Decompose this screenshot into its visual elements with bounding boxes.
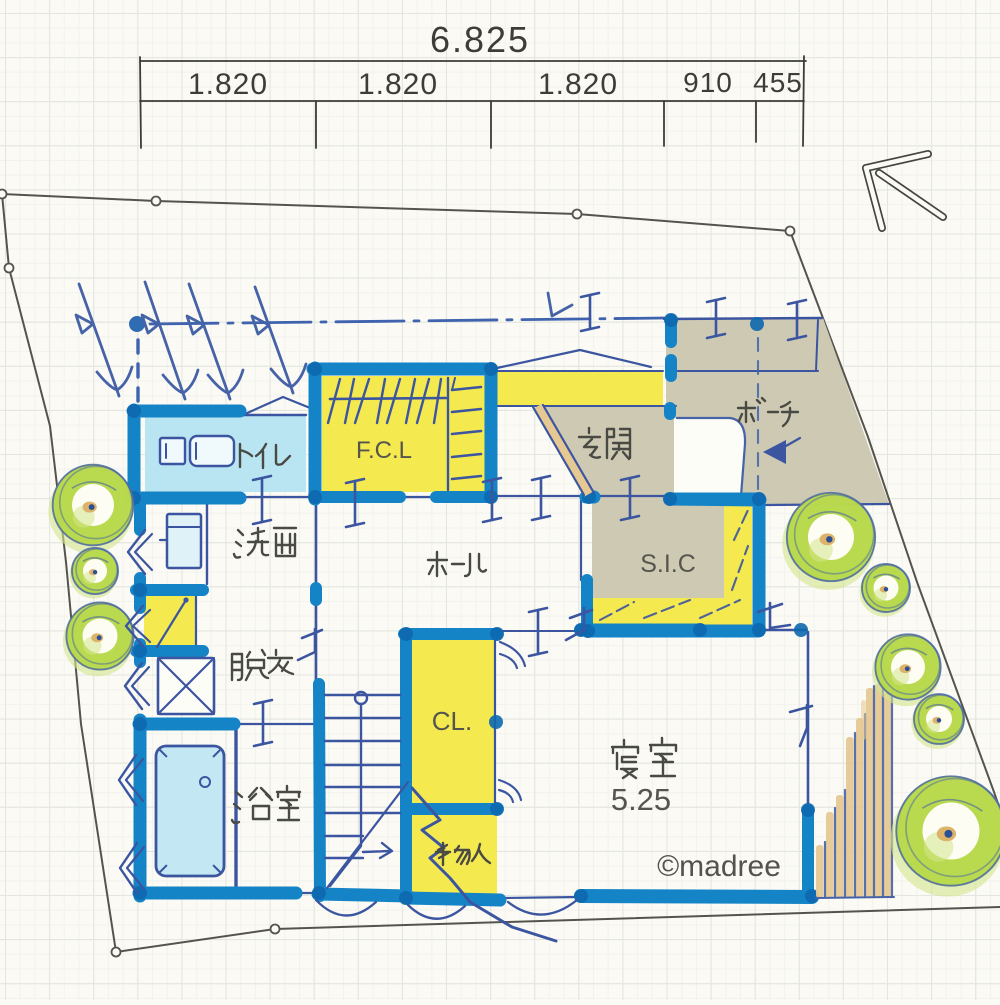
svg-text:F.C.L: F.C.L <box>356 437 412 464</box>
svg-text:5.25: 5.25 <box>611 782 671 817</box>
svg-text:S.I.C: S.I.C <box>640 550 696 578</box>
svg-text:CL.: CL. <box>432 706 472 736</box>
svg-text:6.825: 6.825 <box>430 19 530 60</box>
svg-text:©madree: ©madree <box>657 850 781 883</box>
svg-text:910: 910 <box>683 67 733 98</box>
svg-text:1.820: 1.820 <box>538 68 618 101</box>
svg-text:1.820: 1.820 <box>358 68 438 101</box>
svg-text:455: 455 <box>753 67 803 98</box>
svg-text:1.820: 1.820 <box>188 68 268 101</box>
